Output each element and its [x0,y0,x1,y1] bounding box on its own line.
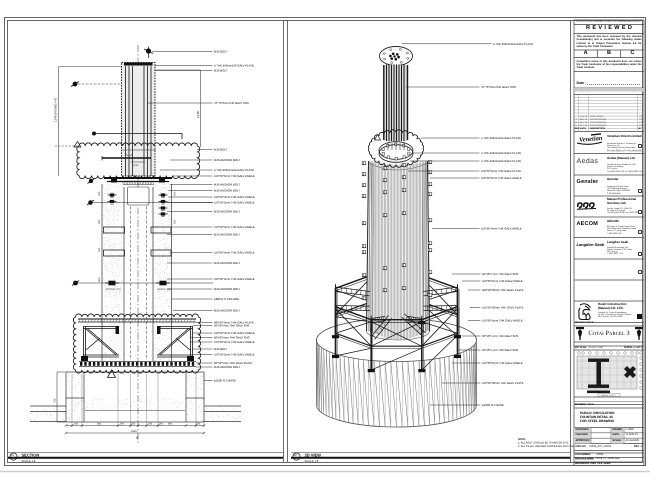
svg-text:L50*50*5mm THK GALV ANGLE: L50*50*5mm THK GALV ANGLE [214,225,255,229]
svg-text:50*50*5mm THK GALV SHS: 50*50*5mm THK GALV SHS [214,336,250,340]
svg-text:02: 02 [293,453,297,457]
svg-text:50*50*5mm THK GALV SHS: 50*50*5mm THK GALV SHS [214,324,250,328]
svg-text:4 THK 450mmDIA GALV PLATE: 4 THK 450mmDIA GALV PLATE [214,64,254,68]
svg-text:L50*50*5mm THK GALV ANGLE: L50*50*5mm THK GALV ANGLE [481,227,522,231]
svg-text:76*76*6mmTHK GALV SHS: 76*76*6mmTHK GALV SHS [214,101,249,105]
svg-text:φ2500 R.C BASE: φ2500 R.C BASE [214,379,236,383]
svg-text:L50*50*5mm THK GALV ANGLE: L50*50*5mm THK GALV ANGLE [214,251,255,255]
svg-text:L50*50*50mm THK GALV PLATE: L50*50*50mm THK GALV PLATE [482,306,524,310]
svg-text:4 THK 450mmDIA GALV PLATE: 4 THK 450mmDIA GALV PLATE [481,159,521,163]
svg-text:4 THK 450mmDIA GALV PLATE: 4 THK 450mmDIA GALV PLATE [214,168,254,172]
svg-text:200: 200 [74,423,79,426]
svg-text:300: 300 [98,191,101,196]
svg-text:300: 300 [174,191,177,196]
svg-text:M16 BOLT: M16 BOLT [214,69,228,73]
svg-text:864: 864 [168,423,173,426]
svg-text:M16 ANCHOR BOLT: M16 ANCHOR BOLT [214,261,240,265]
svg-text:M16 ANCHOR BOLT: M16 ANCHOR BOLT [214,210,240,214]
svg-text:M16 BOLT: M16 BOLT [214,148,228,152]
svg-text:300: 300 [98,247,101,252]
svg-text:50*50*5 mm THK GALV SHS: 50*50*5 mm THK GALV SHS [482,334,518,338]
svg-text:150: 150 [131,423,136,426]
svg-text:2928: 2928 [131,430,137,433]
svg-text:L50*50*5mm THK GALV ANGLE: L50*50*5mm THK GALV ANGLE [214,195,255,199]
svg-text:M16 ANCHOR BOLT: M16 ANCHOR BOLT [214,183,240,187]
svg-text:L50*50*5mm THK GALV ANGLE: L50*50*5mm THK GALV ANGLE [214,353,255,357]
svg-text:A 50: A 50 [133,164,139,167]
svg-text:PARCEL 1, LOT 2: PARCEL 1, LOT 2 [601,393,615,396]
svg-text:864: 864 [97,423,102,426]
svg-text:300: 300 [98,277,101,282]
svg-text:M16 BOLT: M16 BOLT [214,50,228,54]
svg-text:460*50*50mm THK GALV PLATE: 460*50*50mm THK GALV PLATE [482,288,524,292]
svg-text:4 THK 450mmDIA GALV PLATE: 4 THK 450mmDIA GALV PLATE [481,136,521,140]
svg-text:SECTION: SECTION [22,452,40,457]
svg-text:300: 300 [174,219,177,224]
svg-text:M16 ANCHOR BOLT: M16 ANCHOR BOLT [214,189,240,193]
svg-text:1. ALL BOLT SHOULD BE FIXING O: 1. ALL BOLT SHOULD BE FIXING ON SITE. [518,442,570,445]
svg-text:SCALE 1:8: SCALE 1:8 [22,459,36,463]
svg-text:M16 ANCHOR BOLT: M16 ANCHOR BOLT [214,365,240,369]
svg-text:76*76*6mmTHK GALV SHS: 76*76*6mmTHK GALV SHS [481,85,516,89]
svg-text:2. ALL FILLET WELDED SHOULD BE: 2. ALL FILLET WELDED SHOULD BE 3mm THK. [518,445,575,448]
svg-text:M16 BOLT: M16 BOLT [214,347,228,351]
svg-text:(FIXING TYP): (FIXING TYP) [157,288,172,291]
svg-text:L50*50*5mm THK GALV ANGLE: L50*50*5mm THK GALV ANGLE [481,176,522,180]
svg-text:50*50*5 mm THK GALV SHS: 50*50*5 mm THK GALV SHS [482,272,518,276]
svg-text:50*50*5 mm THK GALV SHS: 50*50*5 mm THK GALV SHS [482,348,518,352]
svg-text:M16 ANCHOR BOLT: M16 ANCHOR BOLT [214,233,240,237]
svg-text:L50*50*5mm THK GALV ANGLE: L50*50*5mm THK GALV ANGLE [214,331,255,335]
svg-text:φ800 R.C COLUMN: φ800 R.C COLUMN [214,297,239,301]
svg-text:300: 300 [98,219,101,224]
svg-text:1248 (FIXING HT): 1248 (FIXING HT) [54,98,58,122]
svg-text:(FIXING TYP): (FIXING TYP) [106,288,121,291]
svg-text:3D VIEW: 3D VIEW [305,452,322,457]
svg-text:50 50: 50 50 [126,154,133,157]
svg-text:L50*50*5mm THK GALV ANGLE: L50*50*5mm THK GALV ANGLE [214,174,255,178]
svg-text:NOTE:: NOTE: [518,438,526,441]
svg-text:200: 200 [159,423,164,426]
svg-text:L50*50*50mm THK GALV PLATE: L50*50*50mm THK GALV PLATE [482,381,524,385]
svg-text:SCALE 1:8: SCALE 1:8 [305,459,319,463]
svg-text:L50*50*5mm THK GALV ANGLE: L50*50*5mm THK GALV ANGLE [482,279,523,283]
svg-text:200: 200 [120,423,125,426]
svg-text:200: 200 [196,423,201,426]
svg-text:L50*50*5mm THK GALV PLATE: L50*50*5mm THK GALV PLATE [481,169,521,173]
svg-text:L50*50*5mm THK GALV ANGLE: L50*50*5mm THK GALV ANGLE [214,340,255,344]
svg-text:01: 01 [11,453,15,457]
svg-text:M16 ANCHOR BOLT: M16 ANCHOR BOLT [214,309,240,313]
svg-text:φ2500 R.C BASE: φ2500 R.C BASE [482,403,504,407]
svg-text:750: 750 [54,398,57,403]
svg-text:L50*50*5mm THK GALV ANGLE: L50*50*5mm THK GALV ANGLE [482,361,523,365]
svg-text:1248: 1248 [196,111,200,118]
svg-text:M16 ANCHOR BOLT: M16 ANCHOR BOLT [214,158,240,162]
svg-text:4 THK 450mmDIA GALV PLATE: 4 THK 450mmDIA GALV PLATE [481,151,521,155]
svg-text:M16 ANCHOR BOLT: M16 ANCHOR BOLT [214,287,240,291]
svg-text:L50*50*5mm THK GALV ANGLE: L50*50*5mm THK GALV ANGLE [214,277,255,281]
svg-text:L50*50*5mm THK GALV ANGLE: L50*50*5mm THK GALV ANGLE [482,319,523,323]
svg-text:4 THK 450mmDIA GALV PLATE: 4 THK 450mmDIA GALV PLATE [493,42,533,46]
svg-text:L50*50*5mm THK GALV ANGLE: L50*50*5mm THK GALV ANGLE [214,201,255,205]
svg-text:150: 150 [148,423,153,426]
